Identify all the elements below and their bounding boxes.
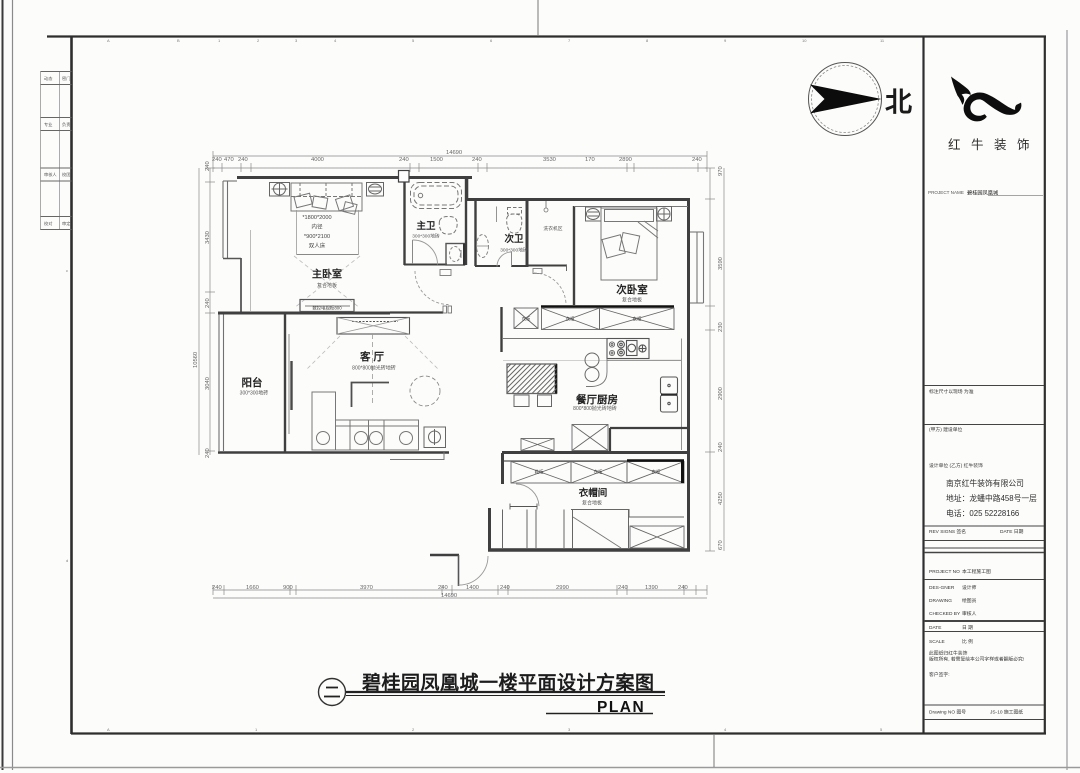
svg-text:碧桂园凤凰城一楼平面设计方案图: 碧桂园凤凰城一楼平面设计方案图 <box>361 671 655 694</box>
